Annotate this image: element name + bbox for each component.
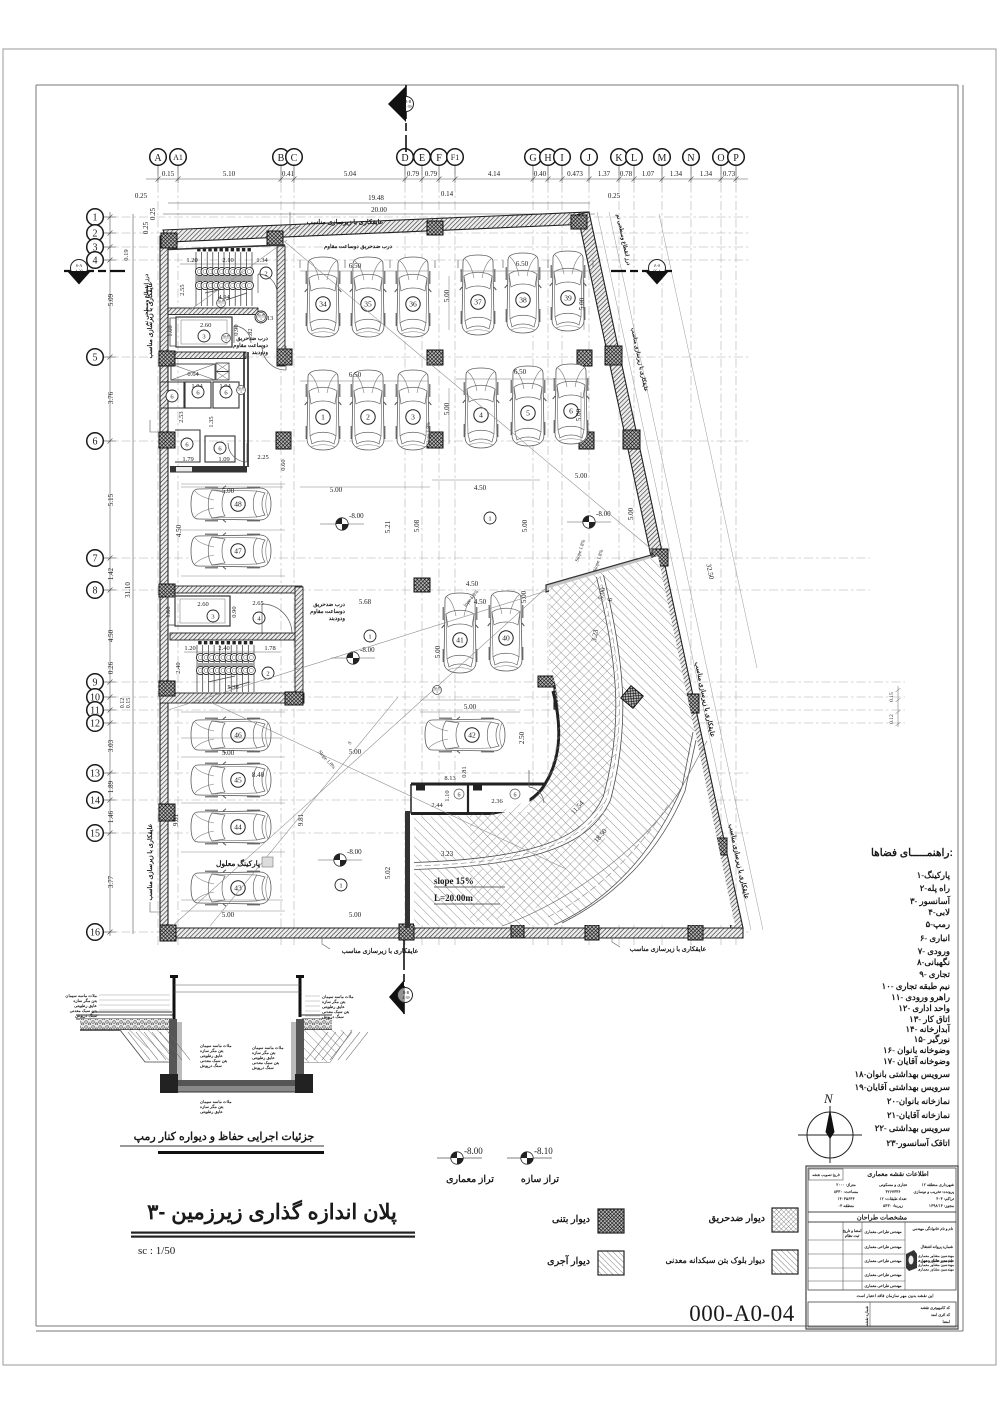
svg-text:H: H — [544, 153, 551, 164]
svg-text:42: 42 — [468, 731, 476, 740]
svg-text:L: L — [631, 153, 637, 164]
svg-text:2.55: 2.55 — [179, 284, 186, 295]
svg-text:35: 35 — [364, 300, 372, 309]
svg-text:۹- تجاری: ۹- تجاری — [919, 969, 950, 980]
svg-text:2: 2 — [266, 670, 269, 677]
svg-text:۲-راه پله: ۲-راه پله — [920, 883, 950, 894]
svg-text:0.78: 0.78 — [620, 170, 633, 178]
svg-text:4.50: 4.50 — [474, 598, 487, 606]
svg-text:I: I — [560, 153, 563, 164]
svg-text:درب ضدحریق: درب ضدحریق — [313, 602, 345, 608]
svg-text:۱۶- وضوخانه بانوان: ۱۶- وضوخانه بانوان — [883, 1045, 950, 1056]
svg-text:1.78: 1.78 — [264, 645, 275, 652]
svg-text:44: 44 — [234, 823, 242, 832]
svg-text:5.38: 5.38 — [227, 684, 238, 691]
svg-text:9.81: 9.81 — [172, 813, 180, 826]
svg-text:ودودبند: ودودبند — [329, 616, 346, 622]
svg-text:تراز معماری: تراز معماری — [446, 1174, 494, 1185]
svg-text:4-39: 4-39 — [403, 996, 410, 1000]
svg-text:J: J — [587, 153, 591, 164]
svg-text:1: 1 — [225, 338, 227, 342]
svg-text:000-A0-04: 000-A0-04 — [689, 1301, 794, 1326]
svg-text:F1: F1 — [451, 153, 459, 162]
svg-text:46: 46 — [234, 731, 242, 740]
svg-text:4: 4 — [479, 411, 483, 420]
svg-text:sc : 1/50: sc : 1/50 — [138, 1245, 176, 1257]
svg-text:1.37: 1.37 — [598, 170, 611, 178]
svg-text:5.68: 5.68 — [359, 598, 372, 606]
svg-text:13: 13 — [90, 769, 100, 780]
svg-text:48: 48 — [234, 500, 242, 509]
svg-text:5.00: 5.00 — [521, 519, 529, 532]
svg-text:1.42: 1.42 — [107, 567, 115, 580]
svg-text:دیوار ضدحریق: دیوار ضدحریق — [709, 1213, 766, 1224]
svg-text:5.00: 5.00 — [575, 408, 583, 421]
svg-text:تراز سازه: تراز سازه — [521, 1174, 560, 1185]
svg-text:15: 15 — [90, 829, 100, 840]
svg-text:5.00: 5.00 — [349, 911, 362, 919]
svg-text:5.00: 5.00 — [464, 703, 477, 711]
svg-text:0.473: 0.473 — [567, 170, 583, 178]
svg-text:۱۴۰۴۵۶۴۴: ۱۴۰۴۵۶۴۴ — [837, 1196, 854, 1201]
svg-text:slope 15%: slope 15% — [434, 876, 474, 886]
svg-text:۲۲- سرویس بهداشتی: ۲۲- سرویس بهداشتی — [875, 1123, 950, 1134]
svg-text:3.76: 3.76 — [107, 391, 115, 404]
svg-text:4-39: 4-39 — [405, 105, 412, 109]
svg-text:1.20: 1.20 — [186, 257, 197, 264]
svg-text:-8.00: -8.00 — [347, 848, 362, 856]
svg-text:37: 37 — [474, 298, 482, 307]
svg-text:9: 9 — [93, 678, 98, 689]
svg-text:۷- ورودی: ۷- ورودی — [917, 946, 950, 957]
svg-text:5.09: 5.09 — [107, 293, 115, 306]
svg-text:4.14: 4.14 — [488, 170, 501, 178]
svg-text:45: 45 — [234, 776, 242, 785]
svg-text:۱-پارکینگ: ۱-پارکینگ — [917, 869, 951, 881]
svg-text:4.50: 4.50 — [107, 629, 115, 642]
svg-text:5.00: 5.00 — [575, 472, 588, 480]
svg-text:0.90: 0.90 — [231, 606, 238, 617]
svg-text:5.00: 5.00 — [222, 749, 235, 757]
svg-text:E: E — [419, 153, 425, 164]
svg-text:دوساعت مقاوم: دوساعت مقاوم — [310, 608, 345, 615]
svg-text:1: 1 — [368, 633, 371, 640]
svg-text:0.25: 0.25 — [608, 192, 621, 200]
svg-text:16: 16 — [90, 928, 100, 939]
svg-text:2.40: 2.40 — [218, 645, 229, 652]
svg-text:1: 1 — [321, 413, 325, 422]
svg-text:2.50: 2.50 — [518, 731, 526, 744]
svg-text:امضا: امضا — [942, 1319, 950, 1324]
svg-text:پلان اندازه گذاری زیرزمین -۳: پلان اندازه گذاری زیرزمین -۳ — [147, 1199, 397, 1225]
svg-text:3.23: 3.23 — [441, 850, 454, 858]
svg-text:1.10: 1.10 — [444, 790, 451, 801]
svg-text:36: 36 — [409, 300, 417, 309]
svg-text:5.00: 5.00 — [627, 507, 635, 520]
svg-text:-8.00: -8.00 — [464, 1146, 483, 1156]
svg-text:1.20: 1.20 — [184, 645, 195, 652]
svg-text:3.77: 3.77 — [107, 875, 115, 888]
svg-text:2.60: 2.60 — [200, 322, 211, 329]
svg-text:1: 1 — [488, 515, 491, 522]
svg-text:5.00: 5.00 — [443, 289, 451, 302]
svg-text:1.89: 1.89 — [107, 780, 115, 793]
svg-text:6.50: 6.50 — [349, 371, 362, 379]
svg-text:۶- انباری: ۶- انباری — [920, 933, 950, 944]
svg-text:1.60: 1.60 — [165, 606, 172, 617]
svg-text:۱۱- راهرو ورودی: ۱۱- راهرو ورودی — [891, 992, 950, 1003]
svg-text:19.48: 19.48 — [368, 194, 384, 202]
svg-text:0.15: 0.15 — [162, 170, 175, 178]
svg-text:0.81: 0.81 — [461, 766, 468, 777]
svg-text:راهنمـــــای فضاها:: راهنمـــــای فضاها: — [871, 847, 953, 859]
svg-text:N: N — [687, 153, 694, 164]
svg-text:0.40: 0.40 — [534, 170, 547, 178]
svg-text:1: 1 — [436, 690, 438, 694]
svg-text:عایقکاری با زیرسازی مناسب: عایقکاری با زیرسازی مناسب — [307, 218, 384, 226]
svg-text:4.50: 4.50 — [175, 524, 183, 537]
svg-text:۲۱-نمازخانه آقایان: ۲۱-نمازخانه آقایان — [887, 1109, 950, 1121]
svg-text:34: 34 — [319, 300, 327, 309]
svg-text:عایقکاری با زیرسازی مناسب: عایقکاری با زیرسازی مناسب — [342, 947, 419, 955]
svg-text:41: 41 — [456, 636, 464, 645]
svg-text:5.00: 5.00 — [443, 402, 451, 415]
svg-text:1.35: 1.35 — [208, 416, 215, 427]
svg-text:3.03: 3.03 — [107, 739, 115, 752]
svg-text:۳۲۶۷۳۳۶: ۳۲۶۷۳۳۶ — [885, 1189, 900, 1194]
svg-text:۲۰-نمازخانه بانوان: ۲۰-نمازخانه بانوان — [887, 1096, 950, 1107]
svg-text:Slope 1.8%: Slope 1.8% — [427, 422, 432, 445]
svg-text:2.53: 2.53 — [178, 411, 185, 422]
svg-text:۱۷- وضوخانه آقایان: ۱۷- وضوخانه آقایان — [883, 1055, 950, 1067]
svg-text:B-B: B-B — [405, 100, 412, 104]
svg-text:4: 4 — [93, 256, 98, 267]
svg-text:0.60: 0.60 — [280, 459, 287, 470]
svg-text:1.09: 1.09 — [218, 456, 229, 463]
svg-text:0.64: 0.64 — [187, 371, 199, 378]
svg-text:1.79: 1.79 — [182, 456, 193, 463]
svg-text:۸-نگهبانی: ۸-نگهبانی — [916, 956, 950, 968]
svg-text:۵-رمپ: ۵-رمپ — [926, 919, 950, 930]
svg-text:-8.00: -8.00 — [596, 510, 611, 518]
svg-text:2.40: 2.40 — [175, 662, 182, 673]
svg-text:0.26: 0.26 — [107, 661, 115, 674]
svg-text:5.04: 5.04 — [344, 170, 357, 178]
svg-text:0.79: 0.79 — [407, 170, 420, 178]
svg-text:4.50: 4.50 — [474, 484, 487, 492]
svg-text:۱۵- نورگیر: ۱۵- نورگیر — [914, 1033, 950, 1045]
svg-text:دیوار بلوک بتن سبکدانه معدنی: دیوار بلوک بتن سبکدانه معدنی — [665, 1256, 765, 1266]
svg-text:درب ضدحریق دوساعت مقاوم: درب ضدحریق دوساعت مقاوم — [324, 243, 393, 250]
svg-text:12: 12 — [90, 719, 100, 730]
svg-text:31.10: 31.10 — [124, 582, 132, 598]
svg-text:1.34: 1.34 — [700, 170, 713, 178]
svg-text:6: 6 — [458, 793, 461, 799]
svg-text:۳- آسانسور: ۳- آسانسور — [910, 895, 952, 907]
svg-text:8.13: 8.13 — [444, 775, 455, 782]
svg-text:M: M — [658, 153, 667, 164]
svg-text:2.25: 2.25 — [257, 454, 268, 461]
svg-text:P: P — [733, 153, 739, 164]
svg-text:منطقه ۰۴: منطقه ۰۴ — [838, 1203, 854, 1208]
svg-text:1.46: 1.46 — [107, 810, 115, 823]
svg-text:۴-لابی: ۴-لابی — [928, 907, 950, 917]
svg-text:عایقکاری با زیرسازی مناسب: عایقکاری با زیرسازی مناسب — [630, 945, 707, 953]
svg-text:6: 6 — [569, 407, 573, 416]
svg-text:1: 1 — [220, 303, 222, 307]
svg-text:4.50: 4.50 — [466, 580, 479, 588]
svg-text:5.08: 5.08 — [413, 519, 421, 532]
svg-text:0.15: 0.15 — [126, 698, 132, 709]
svg-text:2.60: 2.60 — [197, 601, 208, 608]
svg-text:6: 6 — [93, 437, 98, 448]
svg-text:0.14: 0.14 — [441, 190, 454, 198]
svg-text:1: 1 — [93, 213, 98, 224]
svg-text:5: 5 — [526, 409, 530, 418]
svg-text:14: 14 — [90, 796, 100, 807]
svg-text:B: B — [278, 153, 285, 164]
svg-text:1.34: 1.34 — [670, 170, 683, 178]
svg-text:۱۰- نیم طبقه تجاری: ۱۰- نیم طبقه تجاری — [882, 981, 950, 992]
svg-text:اطلاعات نقشه معماری: اطلاعات نقشه معماری — [867, 1170, 929, 1178]
svg-text:1: 1 — [260, 317, 262, 321]
svg-text:۱۸-سرویس بهداشتی بانوان: ۱۸-سرویس بهداشتی بانوان — [854, 1069, 950, 1080]
svg-text:جزئیات اجرایی حفاظ و دیواره کن: جزئیات اجرایی حفاظ و دیواره کنار رمپ — [134, 1131, 315, 1143]
svg-text:عایقکاری با زیرسازی مناسب: عایقکاری با زیرسازی مناسب — [146, 823, 154, 900]
svg-text:47: 47 — [234, 547, 242, 556]
svg-text:دوساعت مقاوم: دوساعت مقاوم — [233, 342, 268, 349]
svg-text:ودودبند: ودودبند — [252, 350, 269, 356]
svg-text:۱۹-سرویس بهداشتی آقایان: ۱۹-سرویس بهداشتی آقایان — [855, 1081, 950, 1093]
svg-text:0.79: 0.79 — [425, 170, 438, 178]
svg-text:5.15: 5.15 — [107, 493, 115, 506]
svg-text:5: 5 — [93, 353, 98, 364]
svg-text:درز انقطاع وسطحی نم: درز انقطاع وسطحی نم — [143, 273, 150, 326]
svg-text:A1: A1 — [173, 153, 183, 162]
svg-text:6.50: 6.50 — [514, 368, 527, 376]
svg-text:2.44: 2.44 — [431, 802, 443, 809]
svg-text:C: C — [291, 153, 298, 164]
svg-text:۱۲- واحد اداری: ۱۲- واحد اداری — [898, 1003, 950, 1014]
svg-text:40: 40 — [502, 634, 510, 643]
svg-text:6: 6 — [514, 793, 517, 799]
svg-text:7: 7 — [93, 554, 98, 565]
svg-text:D: D — [401, 153, 408, 164]
svg-text:1: 1 — [240, 390, 242, 394]
svg-text:-8.10: -8.10 — [534, 1146, 553, 1156]
svg-text:۲۳-اتاقک آسانسور: ۲۳-اتاقک آسانسور — [886, 1137, 950, 1149]
svg-text:5.00: 5.00 — [434, 645, 442, 658]
svg-text:5.00: 5.00 — [578, 297, 586, 310]
svg-text:A: A — [154, 153, 162, 164]
svg-text:6.50: 6.50 — [349, 262, 362, 270]
svg-text:مساحت: ۸۴۳۰: مساحت: ۸۴۳۰ — [833, 1189, 858, 1194]
svg-text:0.25: 0.25 — [149, 207, 157, 220]
svg-text:3: 3 — [411, 413, 415, 422]
svg-text:3: 3 — [211, 613, 214, 620]
svg-text:1.07: 1.07 — [642, 170, 655, 178]
svg-text:2.10: 2.10 — [222, 257, 233, 264]
svg-text:5.02: 5.02 — [384, 866, 392, 879]
svg-text:38: 38 — [519, 296, 527, 305]
svg-text:0.25: 0.25 — [135, 192, 148, 200]
svg-text:5.00: 5.00 — [222, 487, 235, 495]
svg-text:دیوار آجری: دیوار آجری — [547, 1254, 591, 1267]
svg-text:مشخصات طراحان: مشخصات طراحان — [857, 1214, 908, 1222]
svg-text:0.12: 0.12 — [889, 714, 895, 724]
svg-text:N: N — [823, 1091, 834, 1106]
svg-text:K: K — [615, 153, 623, 164]
svg-text:0.15: 0.15 — [889, 692, 895, 702]
svg-text:6.50: 6.50 — [516, 260, 529, 268]
svg-text:0.73: 0.73 — [723, 170, 736, 178]
svg-text:1: 1 — [339, 882, 342, 889]
svg-text:5.21: 5.21 — [384, 520, 392, 533]
svg-text:L=20.00m: L=20.00m — [434, 893, 473, 903]
svg-text:-8.00: -8.00 — [349, 512, 364, 520]
svg-text:G: G — [529, 153, 536, 164]
svg-text:B-B: B-B — [403, 991, 410, 995]
svg-text:درب ضدحریق: درب ضدحریق — [236, 336, 268, 342]
svg-text:20.00: 20.00 — [371, 206, 387, 214]
svg-text:F: F — [436, 153, 442, 164]
svg-text:پارکینگ معلول: پارکینگ معلول — [216, 858, 261, 869]
svg-text:2: 2 — [366, 413, 370, 422]
svg-text:5.00: 5.00 — [222, 911, 235, 919]
svg-text:2.36: 2.36 — [491, 798, 503, 805]
svg-text:0.25: 0.25 — [142, 221, 150, 234]
svg-text:دیوار بتنی: دیوار بتنی — [552, 1214, 591, 1225]
svg-text:8.40: 8.40 — [252, 771, 265, 779]
svg-text:2: 2 — [93, 229, 98, 240]
svg-text:5.10: 5.10 — [223, 170, 236, 178]
svg-text:1.60: 1.60 — [167, 325, 174, 336]
svg-text:O: O — [717, 153, 724, 164]
svg-text:39: 39 — [564, 294, 572, 303]
svg-text:0.19: 0.19 — [123, 249, 130, 260]
svg-text:0.41: 0.41 — [282, 170, 295, 178]
svg-text:3: 3 — [202, 333, 205, 340]
svg-text:8: 8 — [93, 586, 98, 597]
